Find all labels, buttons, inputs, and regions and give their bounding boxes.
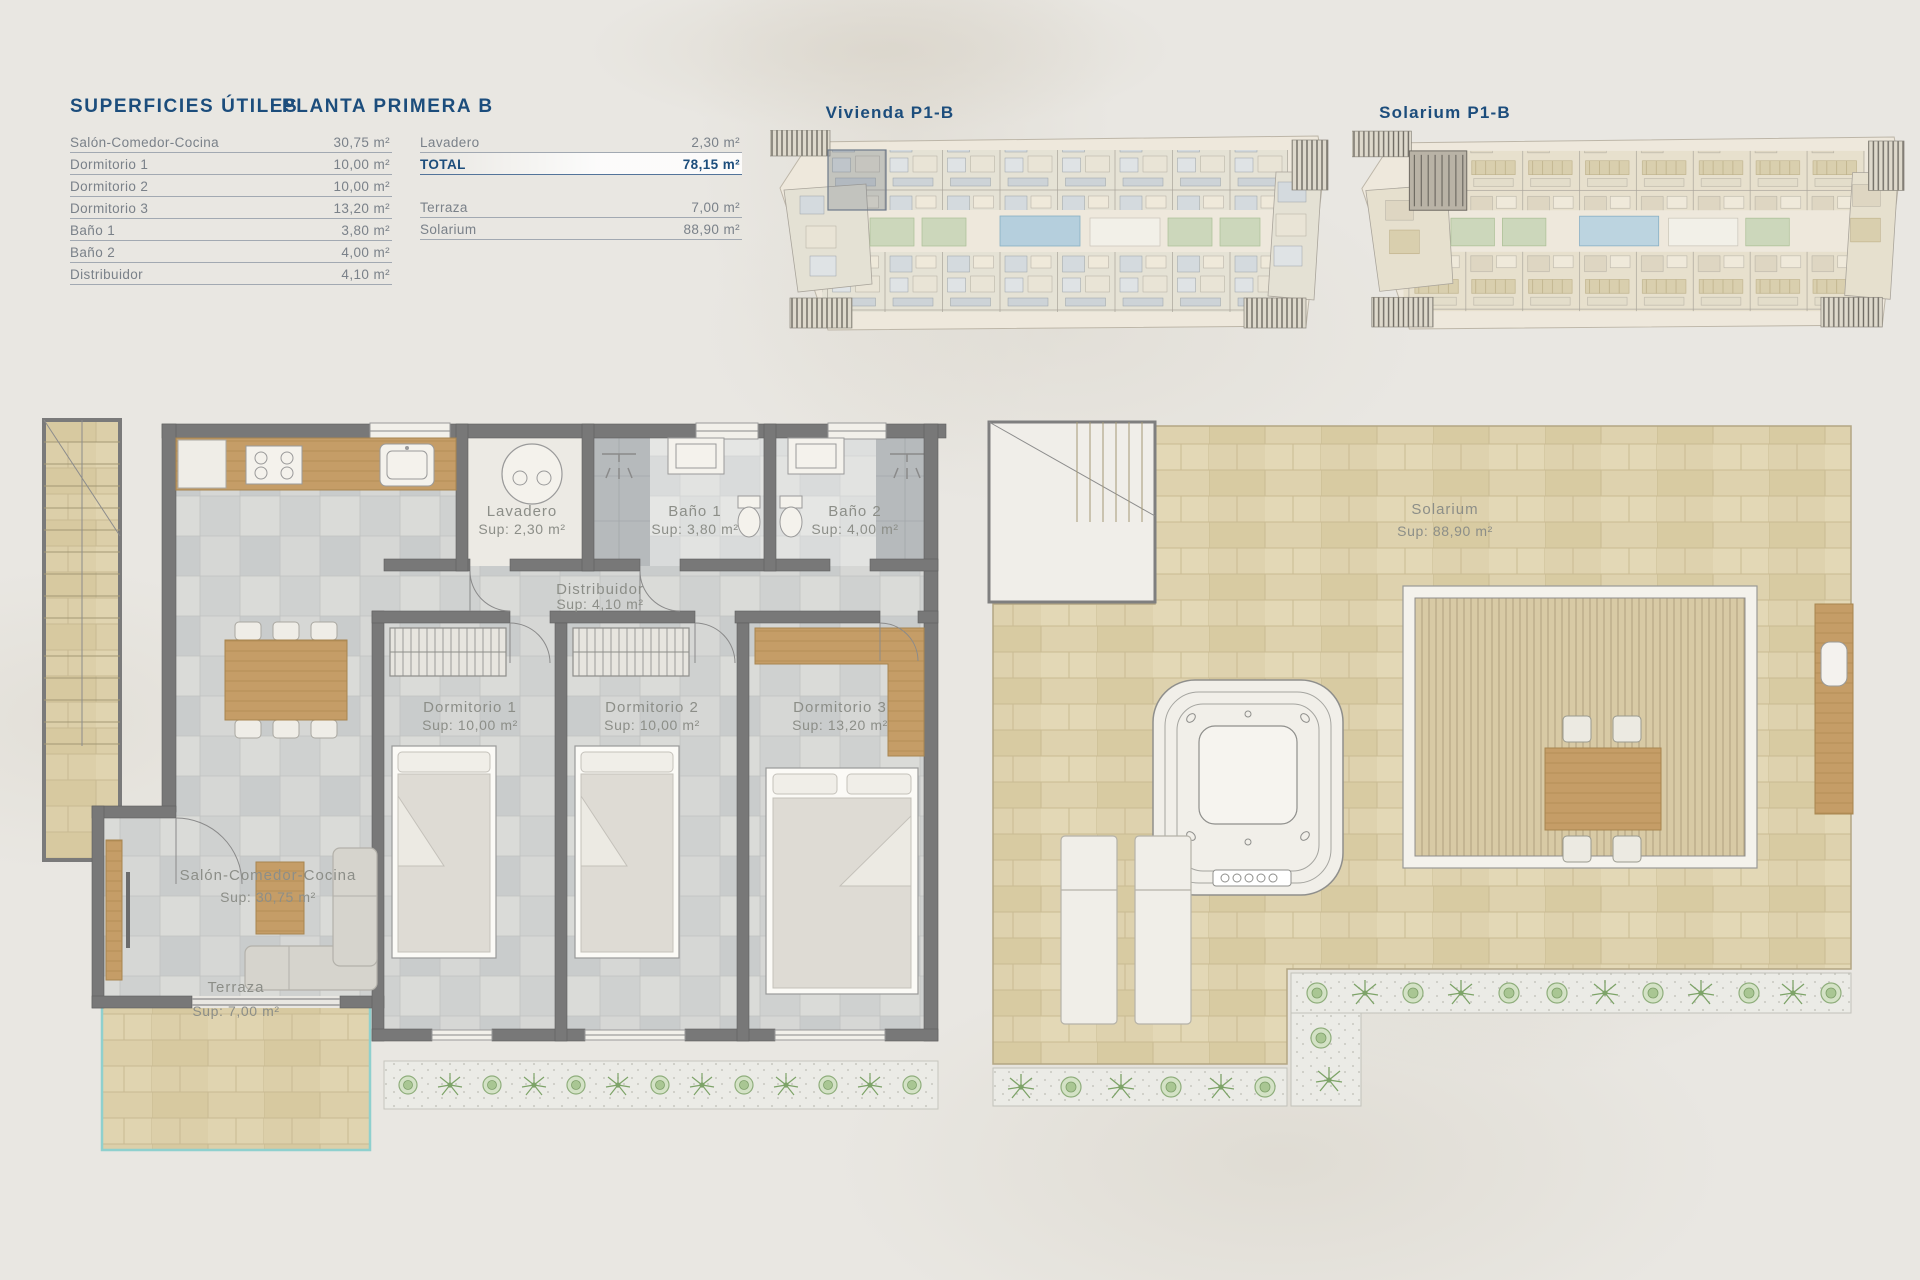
courtyard <box>870 216 1260 246</box>
cooktop-icon <box>246 446 302 484</box>
highlighted-solarium-p1b <box>1409 151 1466 210</box>
legend-left-column: Salón-Comedor-Cocina30,75 m² Dormitorio … <box>70 131 392 285</box>
svg-text:Sup: 30,75 m²: Sup: 30,75 m² <box>220 889 316 905</box>
terrace <box>102 1008 370 1150</box>
dining-set <box>225 622 347 738</box>
solarium-floor-plan: Solarium Sup: 88,90 m² <box>985 418 1875 1108</box>
terraza-label: Terraza <box>207 979 264 996</box>
highlighted-unit-p1b <box>828 150 886 210</box>
svg-text:Sup: 10,00 m²: Sup: 10,00 m² <box>422 717 518 733</box>
solarium-site-plan <box>1352 130 1908 336</box>
pool <box>1000 216 1080 246</box>
stairwell <box>44 420 120 860</box>
svg-text:Sup: 3,80 m²: Sup: 3,80 m² <box>651 521 738 537</box>
table-row-spacer <box>420 175 742 196</box>
legend-title: SUPERFICIES ÚTILES <box>70 96 298 118</box>
table-row: Dormitorio 210,00 m² <box>70 175 392 197</box>
legend-right-column: Lavadero2,30 m² TOTAL78,15 m² Terraza7,0… <box>420 131 742 240</box>
deck-table <box>1545 748 1661 830</box>
table-row: Baño 24,00 m² <box>70 241 392 263</box>
bano1-label: Baño 1 <box>668 503 722 520</box>
salon-label: Salón-Comedor-Cocina <box>180 867 357 884</box>
washing-machine-icon <box>502 444 562 504</box>
svg-text:Solarium: Solarium <box>1411 501 1478 518</box>
wood-bench <box>1815 604 1853 814</box>
bed-dorm1 <box>392 746 496 958</box>
roof-stairwell <box>989 422 1155 602</box>
svg-text:Sup: 7,00 m²: Sup: 7,00 m² <box>192 1003 279 1019</box>
plan-sheet: SUPERFICIES ÚTILES PLANTA PRIMERA B Saló… <box>0 0 1920 1280</box>
vivienda-site-plan-title: Vivienda P1-B <box>780 103 1000 123</box>
svg-text:Sup: 2,30 m²: Sup: 2,30 m² <box>478 521 565 537</box>
kitchen-sink-icon <box>380 444 434 486</box>
table-row: Dormitorio 110,00 m² <box>70 153 392 175</box>
bed-dorm2 <box>575 746 679 958</box>
lavadero-label: Lavadero <box>487 503 558 520</box>
jacuzzi-controls <box>1213 870 1291 886</box>
svg-text:Sup: 88,90 m²: Sup: 88,90 m² <box>1397 523 1493 539</box>
solarium-site-plan-title: Solarium P1-B <box>1335 103 1555 123</box>
table-row: Baño 13,80 m² <box>70 219 392 241</box>
table-row: Solarium88,90 m² <box>420 218 742 240</box>
vivienda-site-plan <box>770 130 1332 336</box>
dorm1-label: Dormitorio 1 <box>423 699 517 716</box>
fridge <box>178 440 226 488</box>
table-row-total: TOTAL78,15 m² <box>420 153 742 175</box>
svg-text:Sup: 4,10 m²: Sup: 4,10 m² <box>556 596 643 612</box>
svg-text:Sup: 13,20 m²: Sup: 13,20 m² <box>792 717 888 733</box>
kitchen <box>176 438 456 490</box>
svg-text:Sup: 4,00 m²: Sup: 4,00 m² <box>811 521 898 537</box>
table-row: Terraza7,00 m² <box>420 196 742 218</box>
dorm2-label: Dormitorio 2 <box>605 699 699 716</box>
svg-text:Sup: 10,00 m²: Sup: 10,00 m² <box>604 717 700 733</box>
dorm3-label: Dormitorio 3 <box>793 699 887 716</box>
planter-strip <box>384 1061 938 1109</box>
bed-dorm3 <box>766 768 918 994</box>
pool <box>1580 216 1659 246</box>
table-row: Lavadero2,30 m² <box>420 131 742 153</box>
table-row: Salón-Comedor-Cocina30,75 m² <box>70 131 392 153</box>
table-row: Dormitorio 313,20 m² <box>70 197 392 219</box>
pergola-deck <box>1403 586 1757 868</box>
legend-plant-title: PLANTA PRIMERA B <box>282 96 494 118</box>
apartment-floor-plan: Lavadero Sup: 2,30 m² Baño 1 Sup: 3,80 m… <box>40 416 950 1156</box>
bano2-label: Baño 2 <box>828 503 882 520</box>
table-row: Distribuidor4,10 m² <box>70 263 392 285</box>
